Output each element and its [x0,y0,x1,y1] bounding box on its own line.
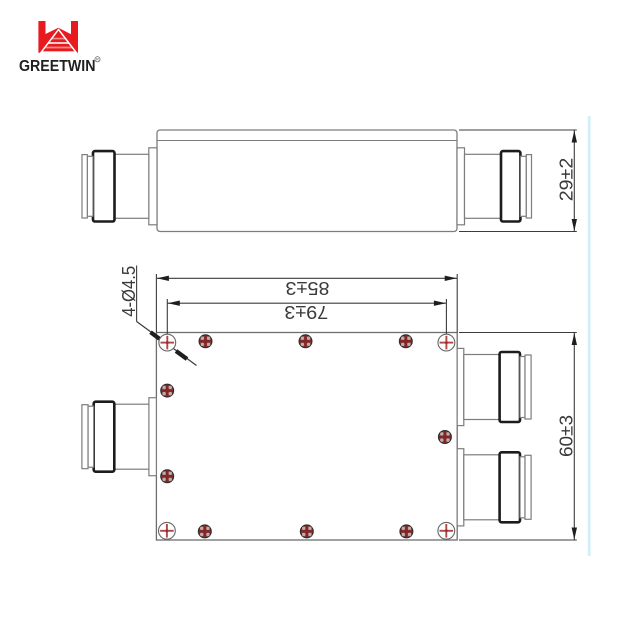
svg-text:R: R [96,58,99,62]
svg-text:85±3: 85±3 [286,278,330,298]
svg-text:GREETWIN: GREETWIN [19,58,96,75]
svg-text:4-Ø4.5: 4-Ø4.5 [119,266,139,317]
svg-text:60±3: 60±3 [557,415,577,457]
svg-text:79±3: 79±3 [284,302,328,322]
svg-text:29±2: 29±2 [556,158,576,202]
